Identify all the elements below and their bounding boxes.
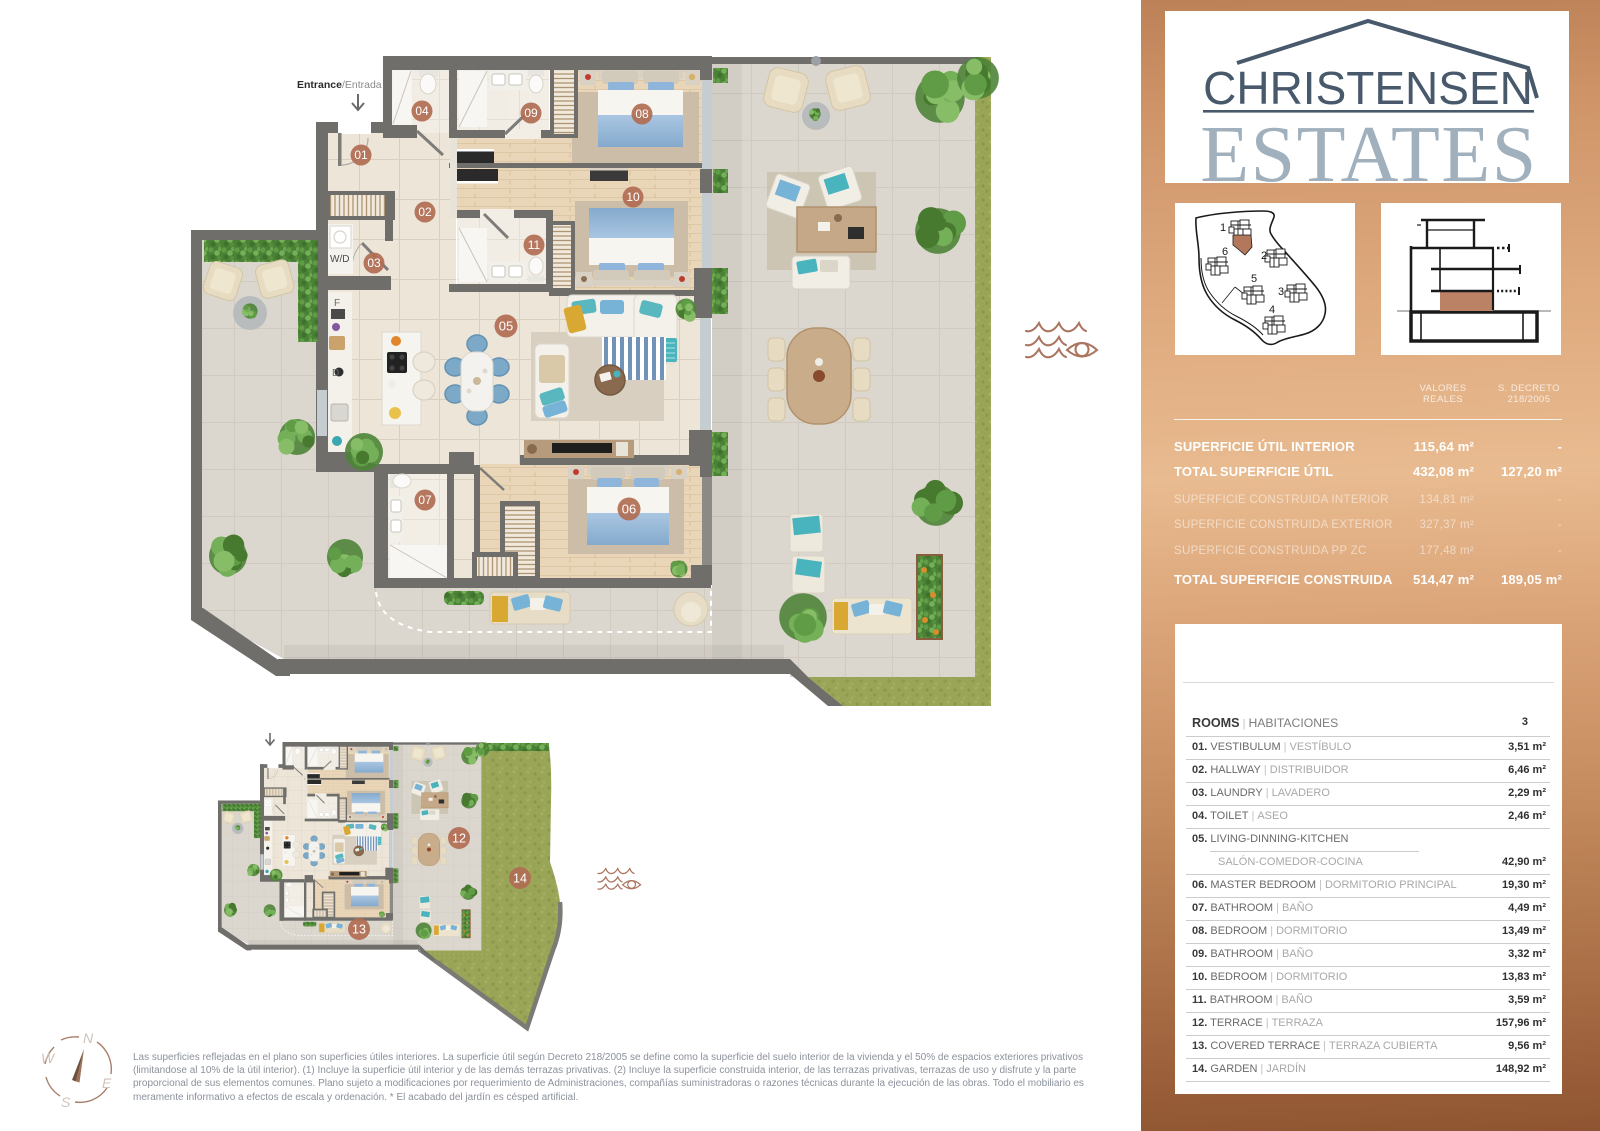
svg-text:14: 14 <box>513 871 527 885</box>
svg-text:01: 01 <box>354 148 368 162</box>
svg-text:D: D <box>332 368 339 379</box>
svg-text:W/D: W/D <box>330 254 349 265</box>
svg-text:F: F <box>334 298 340 309</box>
svg-text:07: 07 <box>418 493 432 507</box>
svg-text:4: 4 <box>1269 304 1275 316</box>
svg-text:10: 10 <box>626 190 640 204</box>
svg-text:ESTATES: ESTATES <box>1200 111 1537 183</box>
svg-text:05: 05 <box>499 319 513 334</box>
svg-text:CHRISTENSEN: CHRISTENSEN <box>1203 62 1533 114</box>
svg-text:S: S <box>61 1094 71 1110</box>
svg-text:6: 6 <box>1222 246 1228 258</box>
svg-text:11: 11 <box>528 238 541 252</box>
svg-text:3: 3 <box>1278 286 1284 298</box>
svg-text:03: 03 <box>367 256 381 270</box>
svg-text:Entrance/Entrada: Entrance/Entrada <box>297 79 382 91</box>
svg-text:04: 04 <box>415 104 429 118</box>
svg-text:E: E <box>102 1075 112 1091</box>
svg-text:12: 12 <box>452 831 466 845</box>
svg-text:13: 13 <box>352 922 366 936</box>
svg-text:W: W <box>41 1050 56 1066</box>
svg-text:1: 1 <box>1220 222 1226 234</box>
svg-text:02: 02 <box>418 205 432 219</box>
svg-text:2: 2 <box>1261 250 1267 262</box>
svg-text:08: 08 <box>635 107 649 121</box>
svg-text:09: 09 <box>524 106 538 120</box>
svg-text:5: 5 <box>1251 273 1257 285</box>
svg-text:06: 06 <box>622 502 636 517</box>
svg-text:N: N <box>83 1030 94 1046</box>
